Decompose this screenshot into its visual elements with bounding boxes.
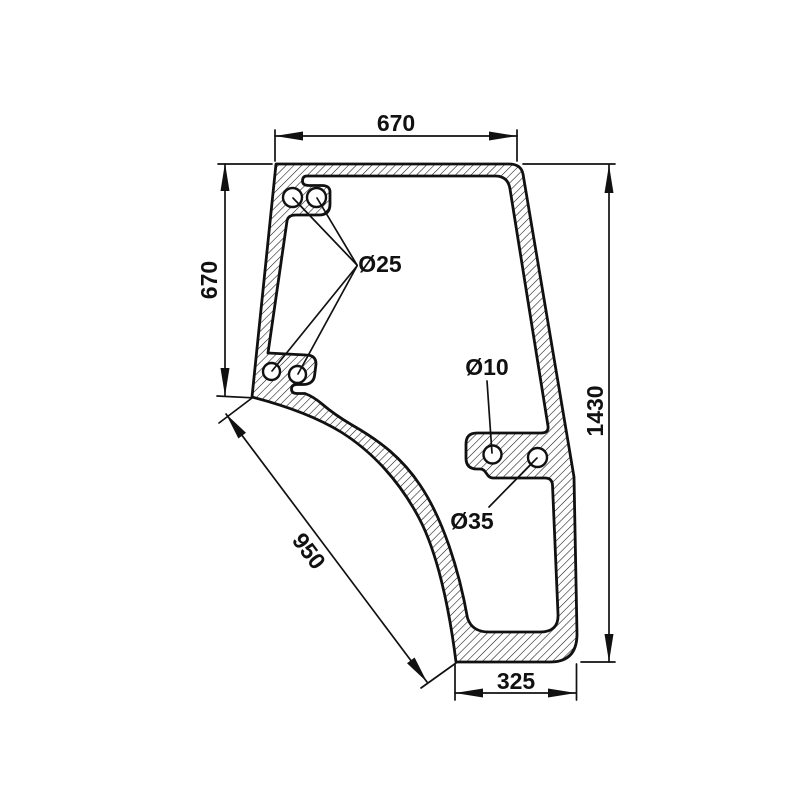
dimension-label-right-height: 1430: [582, 385, 608, 436]
dimension-diagonal-edge: 950: [219, 398, 456, 688]
technical-drawing-canvas: 670 670 1430 325 950 Ø25 Ø10 Ø3: [0, 0, 800, 800]
callout-label-o35: Ø35: [450, 508, 494, 534]
arrowhead: [226, 414, 246, 439]
door-glass-drawing: 670 670 1430 325 950 Ø25 Ø10 Ø3: [0, 0, 800, 800]
dimension-label-diagonal-edge: 950: [287, 528, 331, 574]
arrowhead: [548, 689, 576, 698]
dimension-label-top-width: 670: [377, 110, 415, 136]
arrowhead: [455, 689, 483, 698]
arrowhead: [605, 165, 614, 193]
glass-frame-outline: [252, 164, 577, 662]
arrowhead: [221, 368, 230, 396]
dimension-label-left-height: 670: [196, 261, 222, 299]
arrowhead: [407, 658, 427, 683]
callout-label-o25: Ø25: [358, 251, 402, 277]
dimension-bottom-width: 325: [455, 664, 577, 700]
arrowhead: [489, 132, 517, 141]
callout-label-o10: Ø10: [465, 354, 508, 380]
dimension-top-width: 670: [275, 110, 517, 161]
arrowhead: [275, 132, 303, 141]
arrowhead: [605, 634, 614, 662]
dimension-label-bottom-width: 325: [497, 668, 536, 694]
arrowhead: [221, 163, 230, 191]
